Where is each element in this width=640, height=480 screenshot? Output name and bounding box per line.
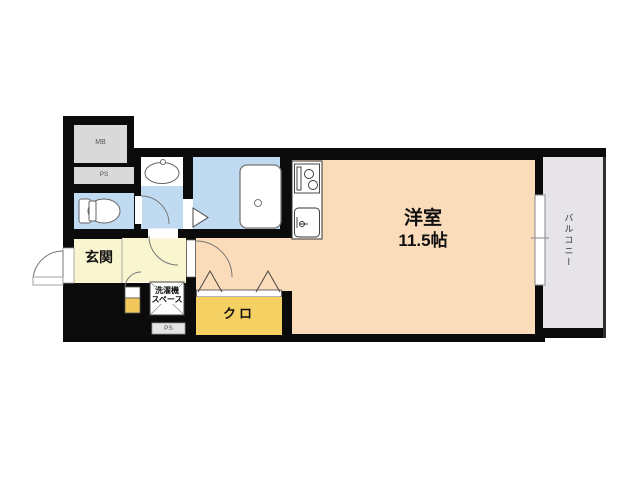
- washbasin-icon: [141, 157, 183, 186]
- closet-opening: [197, 290, 282, 297]
- pipe-space-bottom-label: PS: [152, 325, 185, 332]
- entrance-label: 玄関: [76, 249, 122, 265]
- washer-space-label: 洗濯機 スペース: [149, 286, 185, 304]
- main-room-label: 洋室: [368, 208, 478, 230]
- main-room-size: 11.5帖: [368, 231, 478, 251]
- balcony-rail: [603, 157, 606, 338]
- bathroom-door-gap: [183, 199, 193, 229]
- kitchen-stove-icon: [295, 164, 320, 193]
- room-main-alcove: [196, 238, 292, 291]
- entrance-door-arc: [33, 251, 63, 281]
- meter-box-label: MB: [74, 139, 127, 147]
- entrance-door-leaf: [33, 277, 63, 285]
- floorplan: 洋室 11.5帖 バルコニー 玄関 クロ 洗濯機 スペース MB PS PS: [0, 0, 640, 480]
- toilet-icon: [79, 199, 120, 223]
- washer-space-label-line1: 洗濯機: [155, 286, 179, 295]
- balcony-label: バルコニー: [563, 213, 573, 268]
- toilet-door-gap: [135, 196, 142, 224]
- shoe-cabinet-icon: [125, 287, 140, 313]
- main-door-leaf: [187, 240, 196, 277]
- washbasin-door-gap: [148, 229, 178, 239]
- kitchen-sink-icon: [295, 208, 320, 237]
- floorplan-graphic: [0, 0, 640, 480]
- entrance-door-gap: [63, 248, 74, 283]
- washer-space-label-line2: スペース: [151, 295, 182, 304]
- closet-label: クロ: [196, 307, 282, 322]
- pipe-space-top-label: PS: [74, 171, 134, 178]
- bathtub-icon: [240, 165, 281, 228]
- kitchen-unit: [292, 161, 322, 239]
